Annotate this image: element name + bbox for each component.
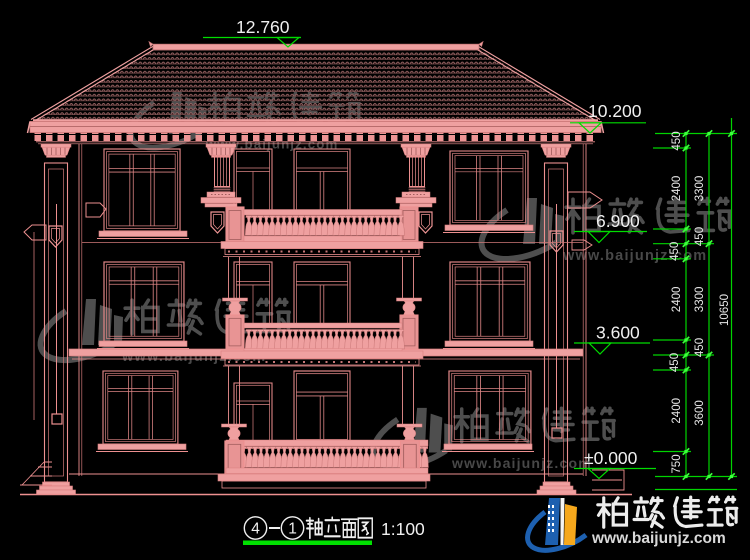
svg-text:750: 750 <box>671 454 683 473</box>
svg-text:1: 1 <box>288 521 297 538</box>
svg-text:4: 4 <box>251 521 260 538</box>
svg-text:2400: 2400 <box>671 287 683 313</box>
svg-text:2400: 2400 <box>671 176 683 202</box>
svg-text:450: 450 <box>694 338 706 357</box>
svg-text:3300: 3300 <box>694 176 706 202</box>
svg-text:450: 450 <box>694 227 706 246</box>
svg-text:10650: 10650 <box>719 294 731 326</box>
svg-text:www.baijunjz.com: www.baijunjz.com <box>591 530 726 547</box>
svg-text:6.900: 6.900 <box>596 211 640 231</box>
svg-text:3600: 3600 <box>694 400 706 426</box>
svg-text:450: 450 <box>669 242 681 261</box>
svg-text:2400: 2400 <box>671 398 683 424</box>
svg-text:12.760: 12.760 <box>236 17 290 37</box>
svg-text:450: 450 <box>669 353 681 372</box>
svg-text:450: 450 <box>671 131 683 150</box>
svg-text:3.600: 3.600 <box>596 323 640 343</box>
svg-text:±0.000: ±0.000 <box>584 448 638 468</box>
svg-text:1:100: 1:100 <box>381 519 425 539</box>
svg-text:3300: 3300 <box>694 287 706 313</box>
svg-text:10.200: 10.200 <box>588 101 642 121</box>
